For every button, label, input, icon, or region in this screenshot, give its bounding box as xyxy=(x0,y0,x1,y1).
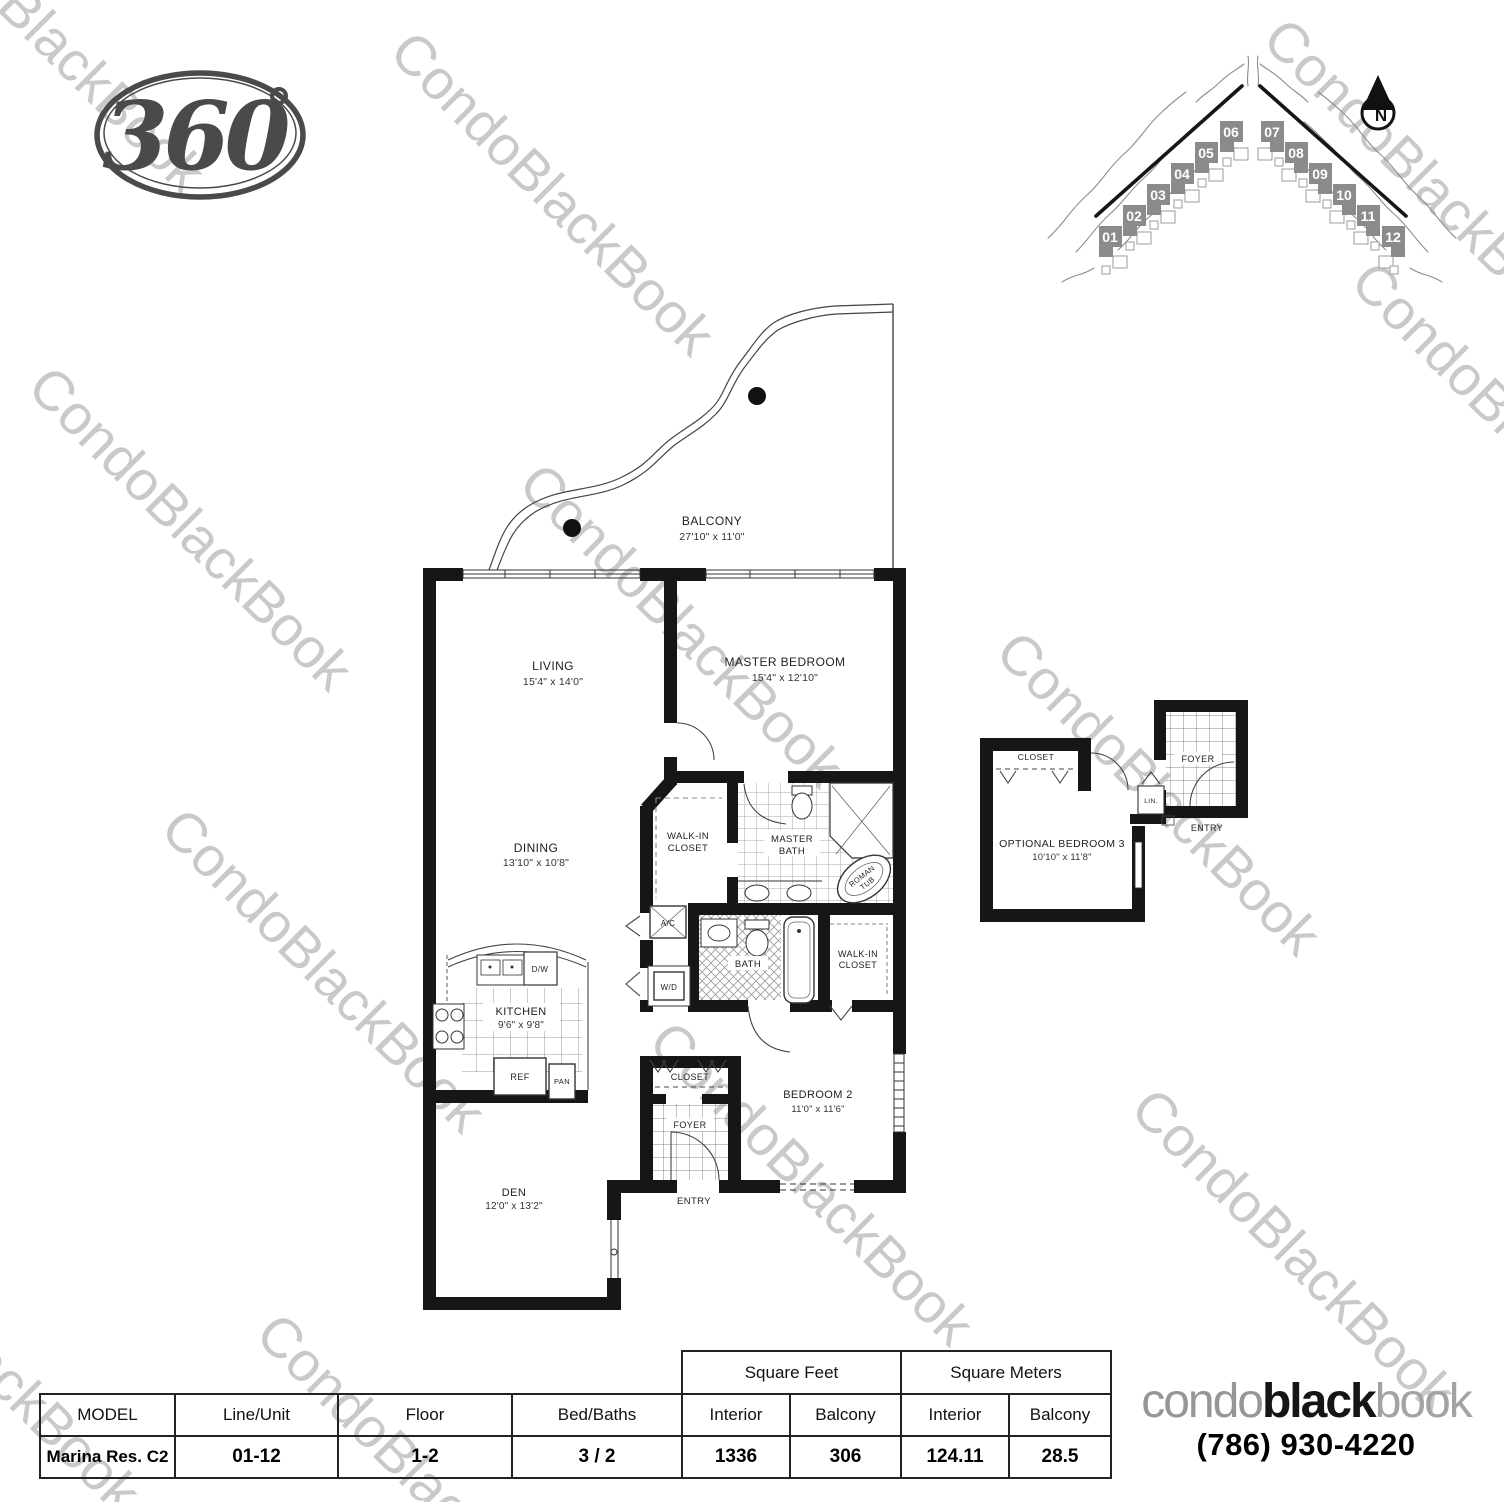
room-label: WALK-IN xyxy=(838,949,878,959)
room-dim: 15'4" x 14'0" xyxy=(523,676,583,688)
value-sf-balcony: 306 xyxy=(789,1435,902,1479)
col-header-floor: Floor xyxy=(337,1393,513,1437)
room-label: A/C xyxy=(661,919,676,928)
unit-number: 05 xyxy=(1198,145,1214,161)
unit-number: 04 xyxy=(1174,166,1190,182)
unit-number: 06 xyxy=(1223,124,1239,140)
room-label: D/W xyxy=(532,965,549,974)
room-label: REF xyxy=(510,1072,529,1082)
unit-number: 11 xyxy=(1361,208,1376,224)
brand-book: book xyxy=(1375,1375,1471,1428)
room-label: PAN xyxy=(554,1077,570,1086)
col-header-bed-baths: Bed/Baths xyxy=(511,1393,683,1437)
logo-text: 360 xyxy=(102,81,290,192)
toilet xyxy=(745,920,769,929)
room-label: DEN xyxy=(502,1187,526,1199)
value-sm-interior: 124.11 xyxy=(900,1435,1010,1479)
room-label: LIVING xyxy=(532,659,574,673)
room-dim: 11'0" x 11'6" xyxy=(791,1104,844,1115)
kitchen-sink xyxy=(477,955,525,985)
group-header-square-meters: Square Meters xyxy=(900,1350,1112,1395)
condoblackbook-logo: condoblackbook xyxy=(1125,1378,1487,1426)
room-label: FOYER xyxy=(673,1120,706,1130)
unit-number: 08 xyxy=(1288,145,1304,161)
unit-number: 01 xyxy=(1102,229,1118,245)
value-model: Marina Res. C2 xyxy=(39,1435,176,1479)
col-header-sf-balcony: Balcony xyxy=(789,1393,902,1437)
room-dim: 9'6" x 9'8" xyxy=(498,1020,544,1031)
col-header-sm-interior: Interior xyxy=(900,1393,1010,1437)
room-dim: 10'10" x 11'8" xyxy=(1032,852,1091,863)
balcony-column xyxy=(563,519,581,537)
unit-number: 03 xyxy=(1150,187,1166,203)
sink xyxy=(745,885,769,901)
north-arrow-icon: N xyxy=(1362,75,1394,129)
room-label: ENTRY xyxy=(1191,823,1223,833)
value-floor: 1-2 xyxy=(337,1435,513,1479)
col-header-model: MODEL xyxy=(39,1393,176,1437)
group-header-square-feet: Square Feet xyxy=(681,1350,902,1395)
unit-number: 02 xyxy=(1126,208,1142,224)
floorplan-page: CondoBlackBook CondoBlackBook CondoBlack… xyxy=(0,0,1504,1502)
room-label: BATH xyxy=(735,959,761,970)
col-header-sm-balcony: Balcony xyxy=(1008,1393,1112,1437)
unit-walls xyxy=(646,780,672,809)
unit-number: 10 xyxy=(1336,187,1352,203)
room-label: DINING xyxy=(514,841,558,855)
value-sm-balcony: 28.5 xyxy=(1008,1435,1112,1479)
room-label: FOYER xyxy=(1181,754,1214,764)
room-label: ENTRY xyxy=(677,1196,711,1207)
room-label: BALCONY xyxy=(682,514,742,528)
sink xyxy=(701,919,737,947)
brand-condo: condo xyxy=(1141,1375,1262,1428)
balcony-column xyxy=(748,387,766,405)
unit-walls xyxy=(423,568,906,1310)
value-sf-interior: 1336 xyxy=(681,1435,791,1479)
building-logo: 360 xyxy=(97,73,303,197)
room-dim: 15'4" x 12'10" xyxy=(752,672,818,684)
room-label: CLOSET xyxy=(671,1072,710,1082)
room-label: BATH xyxy=(779,846,805,857)
unit-number: 07 xyxy=(1264,124,1280,140)
room-label: CLOSET xyxy=(668,843,708,854)
room-label: MASTER xyxy=(771,834,813,845)
room-label: WALK-IN xyxy=(667,831,709,842)
col-header-sf-interior: Interior xyxy=(681,1393,791,1437)
site-key-plan: 01 02 03 04 05 06 07 08 09 10 11 12 xyxy=(1048,56,1456,282)
north-label: N xyxy=(1375,106,1387,125)
phone-number: (786) 930-4220 xyxy=(1125,1429,1487,1461)
floor-plan-drawing: 360 xyxy=(0,0,1504,1502)
sink xyxy=(787,885,811,901)
room-dim: 27'10" x 11'0" xyxy=(679,531,745,543)
unit-number: 12 xyxy=(1385,229,1401,245)
room-label: OPTIONAL BEDROOM 3 xyxy=(999,838,1125,850)
room-label: MASTER BEDROOM xyxy=(725,655,846,669)
room-label: KITCHEN xyxy=(495,1006,546,1018)
unit-boxes: 01 02 03 04 05 06 07 08 09 10 11 12 xyxy=(1099,121,1405,274)
col-header-line-unit: Line/Unit xyxy=(174,1393,339,1437)
room-label: LIN. xyxy=(1144,798,1158,805)
room-label: CLOSET xyxy=(839,960,878,970)
value-line-unit: 01-12 xyxy=(174,1435,339,1479)
room-label: W/D xyxy=(661,983,678,992)
value-bed-baths: 3 / 2 xyxy=(511,1435,683,1479)
unit-number: 09 xyxy=(1312,166,1328,182)
room-dim: 12'0" x 13'2" xyxy=(485,1201,543,1212)
balcony-label: BALCONY 27'10" x 11'0" xyxy=(679,514,745,543)
room-label: BEDROOM 2 xyxy=(783,1089,853,1101)
room-label: CLOSET xyxy=(1018,752,1054,762)
room-dim: 13'10" x 10'8" xyxy=(503,857,569,869)
spec-table: Square Feet Square Meters MODEL Line/Uni… xyxy=(39,1350,1114,1482)
brand-black: black xyxy=(1262,1375,1375,1428)
